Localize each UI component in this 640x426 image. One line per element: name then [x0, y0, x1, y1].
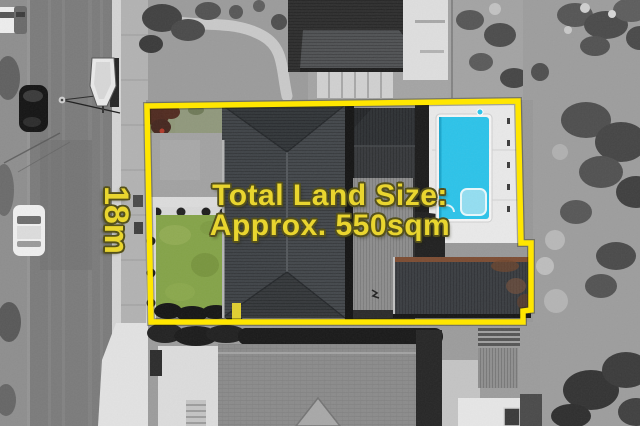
land-size-label: Total Land Size: Approx. 550sqm: [150, 181, 510, 241]
land-size-line2: Approx. 550sqm: [150, 211, 510, 241]
frontage-dimension-label: 18m: [98, 182, 134, 258]
land-size-line1: Total Land Size:: [150, 181, 510, 211]
real-estate-listing-photo: Total Land Size: Approx. 550sqm 18m: [0, 0, 640, 426]
